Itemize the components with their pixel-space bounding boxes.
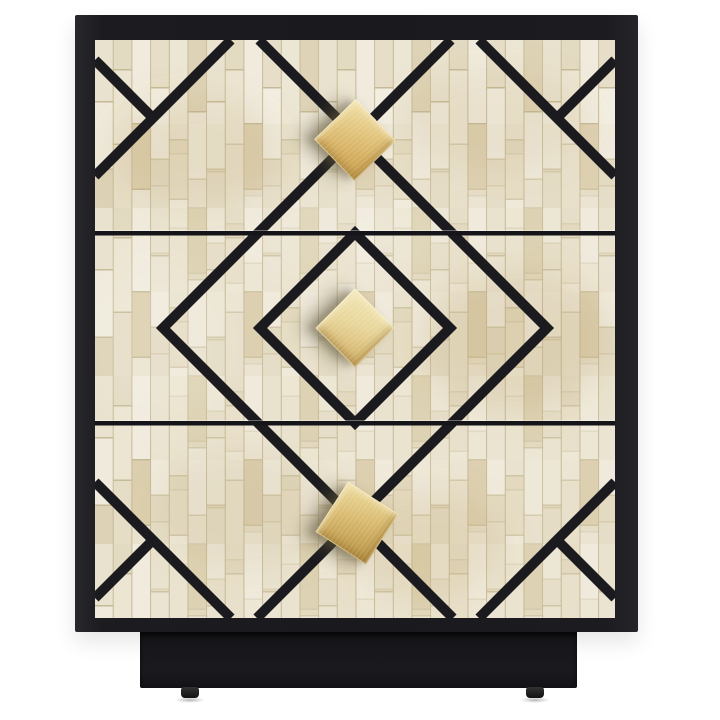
cabinet-frame [75, 15, 638, 632]
plinth-base [140, 632, 577, 688]
foot-right [526, 687, 544, 698]
foot-left [181, 687, 199, 698]
product-photo [0, 0, 720, 720]
